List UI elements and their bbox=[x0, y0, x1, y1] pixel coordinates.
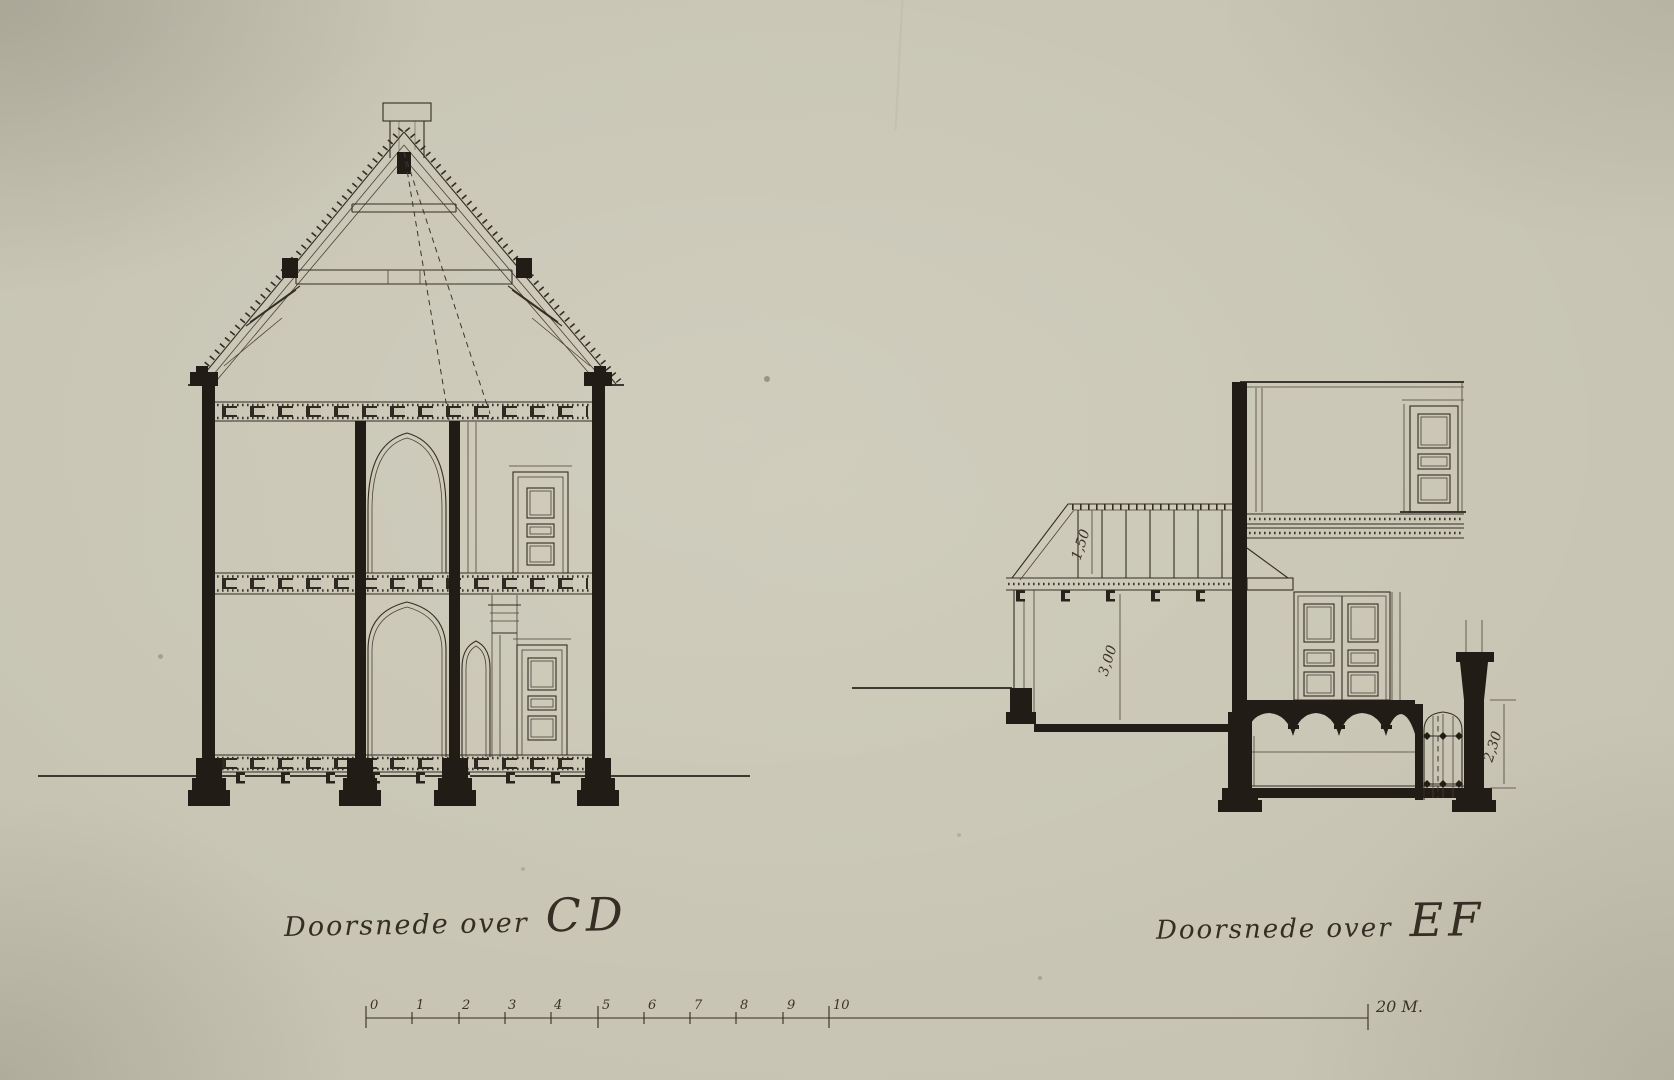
purlin-right bbox=[516, 258, 532, 278]
scale-tick-label-4: 4 bbox=[553, 998, 562, 1013]
annex-roof bbox=[1012, 504, 1232, 580]
caption-ef-text: Doorsnede over bbox=[1156, 913, 1393, 945]
panel-door-lower bbox=[513, 639, 571, 755]
section-cd bbox=[38, 103, 750, 806]
strap-hinge-top bbox=[1423, 732, 1463, 740]
scale-tick-label-3: 3 bbox=[508, 998, 516, 1013]
pointed-arch-lower bbox=[368, 602, 446, 757]
annex-floor bbox=[1034, 724, 1228, 732]
flue-dashed-line bbox=[404, 152, 449, 420]
caption-cd-text: Doorsnede over bbox=[284, 908, 529, 943]
upper-floor-band-ef bbox=[1232, 514, 1464, 538]
middle-floor-band bbox=[215, 573, 592, 594]
hood-ledge bbox=[1247, 578, 1293, 590]
scale-tick-label-2: 2 bbox=[461, 998, 470, 1013]
scale-tick-label-0: 0 bbox=[370, 998, 378, 1013]
scale-tick-label-1: 1 bbox=[416, 998, 424, 1013]
annex: 1,50 3,00 bbox=[1006, 504, 1232, 732]
strut-right bbox=[508, 286, 558, 322]
wall-right bbox=[592, 384, 605, 758]
dimension-basement: 2,30 bbox=[1480, 700, 1516, 788]
caption-section-cd: Doorsnede over CD bbox=[284, 887, 629, 947]
dim-label-basement: 2,30 bbox=[1480, 729, 1505, 765]
wall-left bbox=[202, 384, 215, 758]
basement-floor bbox=[1247, 788, 1464, 798]
double-panel-doors bbox=[1294, 592, 1390, 700]
panel-door-upper bbox=[509, 466, 572, 573]
caption-ef-letters: EF bbox=[1409, 892, 1485, 947]
panel-door-upper-ef bbox=[1400, 400, 1466, 512]
hood-chamfer bbox=[1247, 548, 1288, 578]
scale-tick-label-10: 10 bbox=[833, 998, 850, 1013]
section-ef: 1,50 3,00 bbox=[852, 382, 1516, 812]
caption-section-ef: Doorsnede over EF bbox=[1156, 892, 1486, 949]
annex-wall-footing bbox=[1010, 688, 1032, 714]
dim-label-roof: 1,50 bbox=[1069, 527, 1094, 562]
scale-tick-label-8: 8 bbox=[740, 998, 748, 1013]
interior-post-right bbox=[449, 421, 460, 758]
purlin-left bbox=[282, 258, 298, 278]
pilaster bbox=[488, 595, 521, 757]
lower-storey bbox=[368, 595, 571, 757]
scale-end-label: 20 M. bbox=[1375, 997, 1423, 1016]
roof-battens-left bbox=[193, 129, 401, 381]
strut-left bbox=[250, 286, 300, 322]
vaulted-ceiling bbox=[1247, 712, 1415, 736]
scale-bar: 0 1 2 3 4 5 6 7 8 9 10 20 M. bbox=[366, 997, 1423, 1030]
scale-tick-label-5: 5 bbox=[602, 998, 610, 1013]
pointed-arch-upper bbox=[368, 433, 446, 573]
eave-cornice-left bbox=[190, 372, 218, 386]
interior-post-left bbox=[355, 421, 366, 758]
attic-floor-band bbox=[215, 402, 592, 421]
king-post bbox=[397, 152, 411, 174]
dim-label-room: 3,00 bbox=[1096, 643, 1121, 678]
flue-dashed-line bbox=[404, 152, 492, 420]
scale-tick-label-9: 9 bbox=[787, 998, 795, 1013]
ground-floor-band bbox=[215, 755, 592, 778]
scale-tick-label-6: 6 bbox=[648, 998, 656, 1013]
caption-cd-letters: CD bbox=[545, 887, 628, 942]
scale-tick-label-7: 7 bbox=[694, 998, 703, 1013]
drawing-sheet: 1,50 3,00 bbox=[0, 0, 1674, 1080]
pier-ledge bbox=[1456, 652, 1494, 662]
flared-pier bbox=[1460, 662, 1488, 700]
section-wall bbox=[1232, 382, 1247, 712]
basement-ceiling-beam bbox=[1247, 700, 1415, 712]
structure-ef bbox=[1218, 382, 1496, 812]
dimension-roof-height: 1,50 bbox=[1069, 510, 1094, 574]
strap-hinge-bottom bbox=[1423, 780, 1463, 788]
main-block: 2,30 bbox=[1218, 382, 1516, 812]
ground-floor-ef bbox=[1247, 548, 1482, 700]
eave-cornice-right bbox=[584, 372, 612, 386]
upper-storey bbox=[368, 422, 572, 573]
basement bbox=[1247, 700, 1464, 800]
roof-truss bbox=[224, 152, 590, 420]
dimension-room-height: 3,00 bbox=[1096, 594, 1121, 720]
roof-battens-right bbox=[407, 129, 619, 381]
